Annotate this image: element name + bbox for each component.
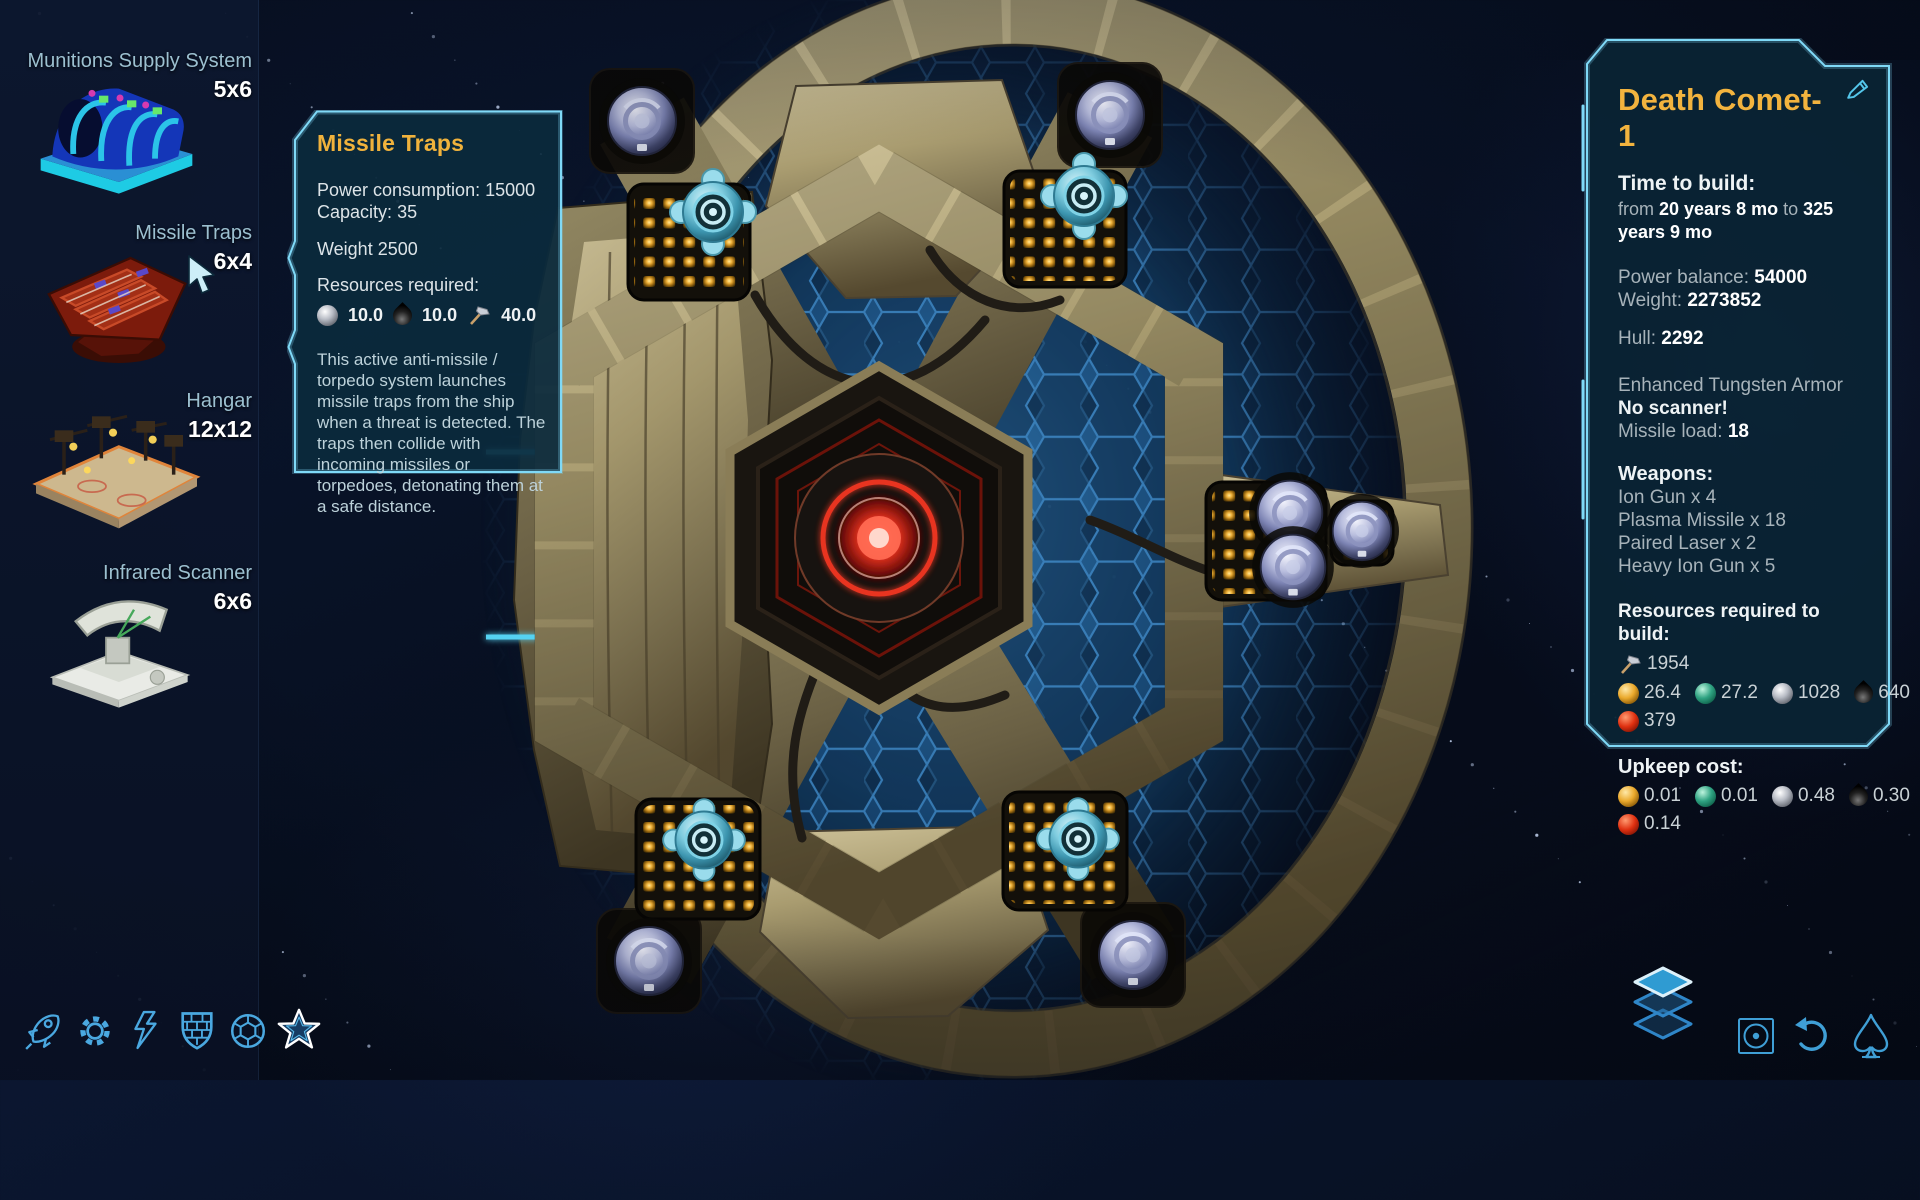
weight-line: Weight 2500 — [317, 238, 547, 260]
lightning-icon[interactable] — [124, 1006, 168, 1054]
layers-icon[interactable] — [1630, 966, 1696, 1048]
weapon-entry: Ion Gun x 4 — [1618, 486, 1870, 509]
hex-sphere-icon[interactable] — [226, 1006, 270, 1054]
resources-required-row: 10.0 10.0 40.0 — [317, 303, 547, 327]
upkeep-row-2: 0.14 — [1618, 813, 1870, 835]
weight-line: Weight: 2273852 — [1618, 289, 1870, 312]
time-to-build-value: from 20 years 8 mo to 325 years 9 mo — [1618, 198, 1870, 244]
weapon-entry: Heavy Ion Gun x 5 — [1618, 555, 1870, 578]
build-resources-row-1: 1954 — [1618, 652, 1870, 676]
build-resources-label: Resources required to build: — [1618, 600, 1870, 646]
weapon-entry: Paired Laser x 2 — [1618, 532, 1870, 555]
silver-ore-icon — [1772, 683, 1793, 704]
scanner-line: No scanner! — [1618, 397, 1870, 420]
module-size: 12x12 — [188, 416, 252, 443]
module-size: 5x6 — [214, 76, 252, 103]
rocket-icon[interactable] — [22, 1006, 66, 1054]
build-hammer-icon — [467, 303, 491, 327]
hangar-thumbnail — [18, 400, 208, 540]
gem-icon — [1695, 786, 1716, 807]
module-name: Missile Traps — [135, 222, 252, 245]
star-icon[interactable] — [277, 1006, 321, 1054]
munitions-supply-thumbnail — [18, 56, 208, 196]
power-consumption-line: Power consumption: 15000 — [317, 179, 547, 201]
missile-load-line: Missile load: 18 — [1618, 420, 1870, 443]
center-view-icon[interactable] — [1736, 1016, 1776, 1056]
build-resources-row-2: 26.4 27.2 1028 640 — [1618, 682, 1870, 704]
module-size: 6x6 — [214, 588, 252, 615]
module-description: This active anti-missile / torpedo syste… — [317, 349, 547, 517]
red-ore-icon — [1618, 711, 1639, 732]
time-to-build-label: Time to build: — [1618, 172, 1870, 195]
action-bar — [1736, 1012, 1894, 1060]
resources-required-label: Resources required: — [317, 275, 547, 296]
gem-icon — [1695, 683, 1716, 704]
hull-line: Hull: 2292 — [1618, 327, 1870, 350]
ship-info-panel: Death Comet-1 Time to build: from 20 yea… — [1581, 38, 1893, 750]
missile-traps-thumbnail — [18, 230, 208, 370]
tooltip-title: Missile Traps — [317, 130, 547, 157]
build-hammer-icon — [1618, 652, 1642, 676]
power-balance-line: Power balance: 54000 — [1618, 266, 1870, 289]
armor-line: Enhanced Tungsten Armor — [1618, 374, 1870, 397]
upkeep-row-1: 0.01 0.01 0.48 0.30 — [1618, 785, 1870, 807]
module-name: Hangar — [186, 390, 252, 413]
module-size: 6x4 — [214, 248, 252, 275]
oil-drop-icon — [1850, 680, 1877, 707]
undo-icon[interactable] — [1793, 1016, 1831, 1056]
silver-ore-icon — [1772, 786, 1793, 807]
oil-drop-icon — [389, 302, 416, 329]
pencil-icon[interactable] — [1846, 78, 1870, 104]
module-tooltip-panel: Missile Traps Power consumption: 15000 C… — [287, 110, 563, 474]
weapon-entry: Plasma Missile x 18 — [1618, 509, 1870, 532]
infrared-scanner-thumbnail — [18, 570, 208, 710]
red-ore-icon — [1618, 814, 1639, 835]
gold-icon — [1618, 786, 1639, 807]
upkeep-label: Upkeep cost: — [1618, 756, 1870, 779]
oil-drop-icon — [1845, 783, 1872, 810]
module-sidebar: Munitions Supply System 5x6 Missile Trap… — [0, 0, 259, 1080]
sidebar-item-munitions-supply[interactable]: Munitions Supply System 5x6 — [0, 38, 258, 206]
spade-ship-icon[interactable] — [1848, 1012, 1894, 1060]
module-name: Infrared Scanner — [103, 562, 252, 585]
silver-ore-icon — [317, 305, 338, 326]
brick-shield-icon[interactable] — [175, 1006, 219, 1054]
sidebar-item-infrared-scanner[interactable]: Infrared Scanner 6x6 — [0, 552, 258, 720]
gear-icon[interactable] — [73, 1006, 117, 1054]
sidebar-item-missile-traps[interactable]: Missile Traps 6x4 — [0, 212, 258, 380]
gold-icon — [1618, 683, 1639, 704]
weapons-label: Weapons: — [1618, 463, 1870, 486]
build-resources-row-3: 379 — [1618, 710, 1870, 732]
sidebar-item-hangar[interactable]: Hangar 12x12 — [0, 382, 258, 550]
category-bar — [22, 1006, 321, 1054]
capacity-line: Capacity: 35 — [317, 201, 547, 223]
module-name: Munitions Supply System — [27, 50, 252, 73]
ship-name-title: Death Comet-1 — [1618, 82, 1836, 154]
